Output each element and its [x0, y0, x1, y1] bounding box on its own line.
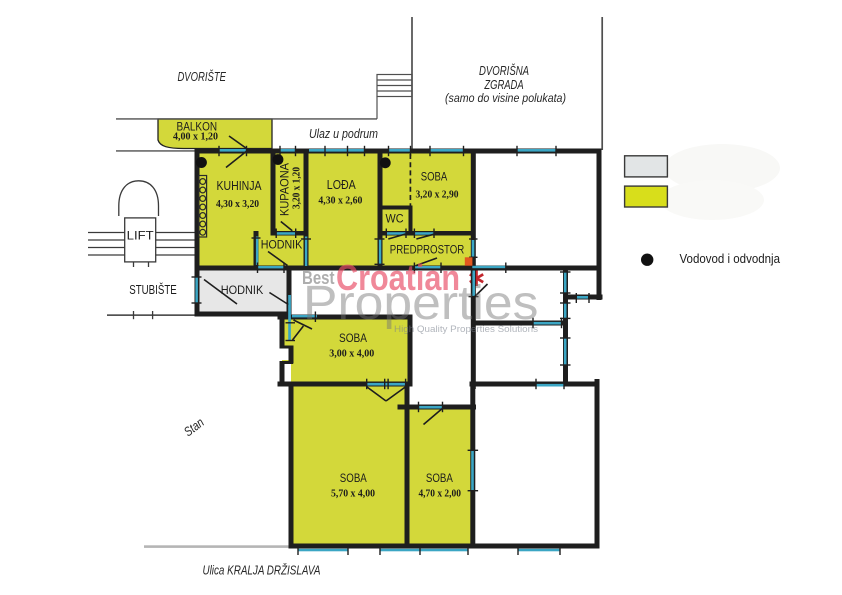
svg-text:KUHINJA: KUHINJA	[217, 178, 262, 193]
svg-text:(samo do visine polukata): (samo do visine polukata)	[445, 91, 566, 105]
svg-text:SOBA: SOBA	[340, 471, 367, 485]
svg-text:ZGRADA: ZGRADA	[484, 77, 524, 92]
svg-text:Stan: Stan	[181, 415, 207, 440]
svg-text:STUBIŠTE: STUBIŠTE	[129, 282, 177, 297]
svg-text:SOBA: SOBA	[339, 331, 367, 345]
svg-text:HODNIK: HODNIK	[221, 283, 264, 297]
svg-text:SOBA: SOBA	[421, 169, 448, 183]
svg-text:Ulaz u podrum: Ulaz u podrum	[309, 126, 378, 141]
svg-text:3,00 x 4,00: 3,00 x 4,00	[329, 349, 374, 360]
svg-text:HODNIK: HODNIK	[261, 237, 303, 251]
svg-text:3,20 x 2,90: 3,20 x 2,90	[416, 189, 459, 200]
svg-text:WC: WC	[386, 212, 404, 226]
svg-text:LIFT: LIFT	[127, 229, 154, 243]
svg-text:DVORIŠNA: DVORIŠNA	[479, 63, 529, 78]
svg-text:DVORIŠTE: DVORIŠTE	[177, 69, 226, 84]
svg-text:4,30 x 2,60: 4,30 x 2,60	[318, 195, 362, 206]
svg-text:High Quality Properties Soluti: High Quality Properties Solutions	[394, 324, 538, 334]
svg-text:Vodovod i odvodnja: Vodovod i odvodnja	[680, 252, 781, 266]
svg-text:LOĐA: LOĐA	[327, 177, 356, 192]
svg-text:Properties: Properties	[303, 277, 539, 330]
svg-text:PREDPROSTOR: PREDPROSTOR	[390, 243, 465, 257]
svg-text:4,00 x 1,20: 4,00 x 1,20	[173, 132, 218, 143]
svg-text:SOBA: SOBA	[426, 471, 453, 485]
svg-text:3,20 x 1,20: 3,20 x 1,20	[292, 167, 303, 209]
svg-text:Ulica KRALJA DRŽISLAVA: Ulica KRALJA DRŽISLAVA	[203, 563, 321, 578]
svg-text:4,70 x 2,00: 4,70 x 2,00	[418, 489, 461, 500]
svg-text:4,30 x 3,20: 4,30 x 3,20	[216, 199, 259, 210]
svg-text:5,70 x 4,00: 5,70 x 4,00	[331, 489, 375, 500]
svg-text:KUPAONA: KUPAONA	[277, 163, 291, 216]
